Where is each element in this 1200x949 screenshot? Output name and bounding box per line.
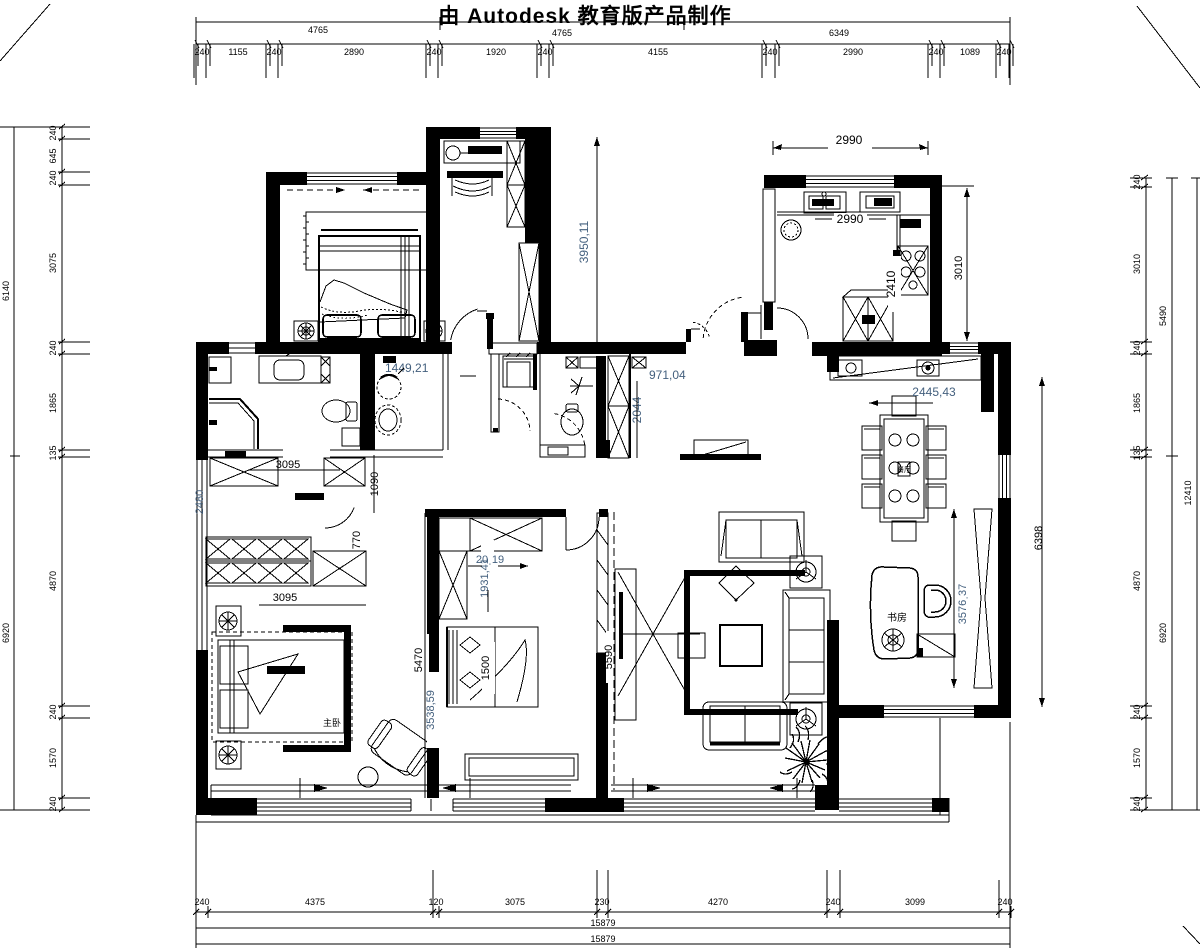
svg-text:3075: 3075 — [505, 897, 525, 907]
svg-text:1865: 1865 — [48, 393, 58, 413]
svg-text:6920: 6920 — [1158, 623, 1168, 643]
svg-text:3010: 3010 — [953, 256, 965, 280]
svg-text:2990: 2990 — [836, 133, 863, 147]
svg-text:240: 240 — [194, 897, 209, 907]
svg-text:主卧: 主卧 — [323, 717, 341, 728]
svg-text:4870: 4870 — [1132, 571, 1142, 591]
svg-text:240: 240 — [1132, 340, 1142, 355]
svg-text:240: 240 — [48, 125, 58, 140]
svg-text:3075: 3075 — [48, 253, 58, 273]
svg-text:4270: 4270 — [708, 897, 728, 907]
svg-text:240: 240 — [1132, 796, 1142, 811]
svg-text:3095: 3095 — [276, 459, 300, 471]
svg-text:15879: 15879 — [590, 918, 615, 928]
svg-text:4155: 4155 — [648, 47, 668, 57]
svg-text:3576ˌ37: 3576ˌ37 — [957, 584, 969, 624]
svg-text:240: 240 — [1132, 174, 1142, 189]
svg-text:3010: 3010 — [1132, 254, 1142, 274]
svg-text:1920: 1920 — [486, 47, 506, 57]
svg-text:240: 240 — [928, 47, 943, 57]
svg-text:1155: 1155 — [228, 47, 247, 57]
svg-text:2990: 2990 — [837, 212, 864, 226]
svg-text:1500: 1500 — [480, 656, 492, 680]
svg-text:3950,11: 3950,11 — [577, 220, 591, 263]
svg-text:5470: 5470 — [413, 648, 425, 672]
svg-text:3099: 3099 — [905, 897, 925, 907]
svg-text:5590: 5590 — [603, 645, 615, 669]
svg-text:240: 240 — [48, 704, 58, 719]
svg-text:书房: 书房 — [887, 611, 907, 624]
svg-text:135: 135 — [48, 445, 58, 460]
svg-text:6140: 6140 — [1, 281, 11, 301]
svg-text:2480: 2480 — [194, 490, 206, 514]
svg-text:240: 240 — [762, 47, 777, 57]
svg-text:4870: 4870 — [48, 571, 58, 591]
svg-text:1570: 1570 — [1132, 748, 1142, 768]
svg-text:4765: 4765 — [552, 28, 572, 38]
svg-text:15879: 15879 — [590, 934, 615, 944]
svg-text:1090: 1090 — [369, 472, 381, 496]
svg-text:240: 240 — [194, 47, 209, 57]
svg-text:12410: 12410 — [1183, 480, 1193, 505]
svg-text:20ˌ19: 20ˌ19 — [476, 554, 504, 566]
svg-text:1865: 1865 — [1132, 393, 1142, 413]
svg-text:1570: 1570 — [48, 748, 58, 768]
svg-text:6920: 6920 — [1, 623, 11, 643]
svg-text:2890: 2890 — [344, 47, 364, 57]
svg-text:由 Autodesk 教育版产品制作: 由 Autodesk 教育版产品制作 — [438, 4, 731, 28]
svg-text:4765: 4765 — [308, 25, 328, 35]
svg-text:240: 240 — [266, 47, 281, 57]
svg-text:1089: 1089 — [960, 47, 980, 57]
svg-text:120: 120 — [428, 897, 443, 907]
svg-text:240: 240 — [48, 796, 58, 811]
svg-text:2990: 2990 — [843, 47, 863, 57]
svg-text:1449,21: 1449,21 — [385, 361, 429, 375]
svg-text:2410: 2410 — [884, 270, 898, 297]
svg-text:240: 240 — [48, 170, 58, 185]
svg-text:240: 240 — [537, 47, 552, 57]
svg-text:240: 240 — [825, 897, 840, 907]
svg-text:240: 240 — [48, 340, 58, 355]
svg-text:240: 240 — [426, 47, 441, 57]
svg-text:2445,43: 2445,43 — [912, 385, 956, 399]
svg-text:240: 240 — [996, 47, 1011, 57]
svg-text:240: 240 — [1132, 704, 1142, 719]
svg-text:6398: 6398 — [1033, 526, 1045, 550]
svg-text:5490: 5490 — [1158, 306, 1168, 326]
svg-text:770: 770 — [351, 531, 363, 549]
svg-text:3538,59: 3538,59 — [425, 690, 437, 730]
svg-text:餐厅: 餐厅 — [897, 465, 911, 474]
svg-text:645: 645 — [48, 148, 58, 163]
svg-text:971,04: 971,04 — [649, 368, 686, 382]
svg-text:135: 135 — [1132, 445, 1142, 460]
svg-text:3095: 3095 — [273, 592, 297, 604]
svg-text:4375: 4375 — [305, 897, 325, 907]
svg-text:6349: 6349 — [829, 28, 849, 38]
